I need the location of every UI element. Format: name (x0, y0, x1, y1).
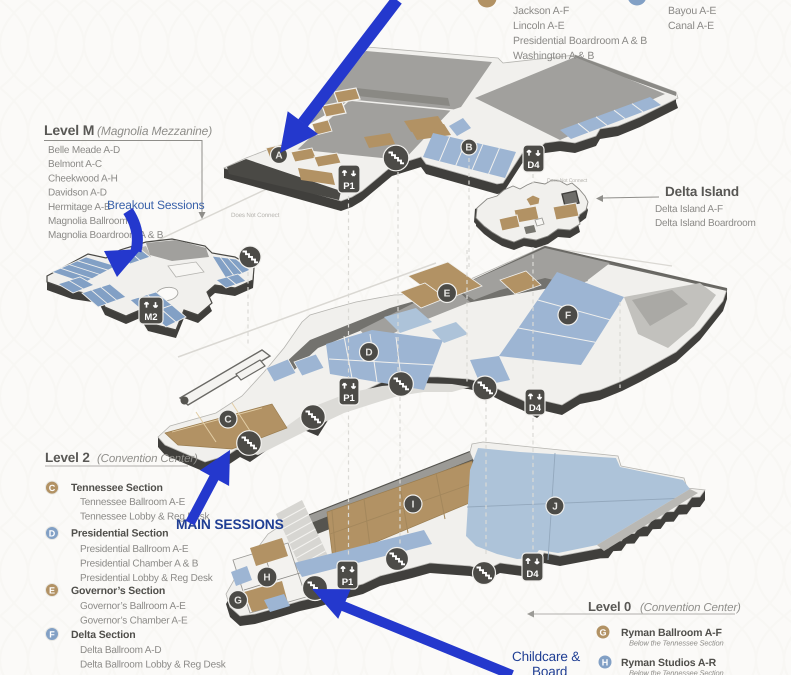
svg-text:D4: D4 (526, 569, 539, 580)
svg-text:F: F (49, 630, 55, 640)
svg-text:M2: M2 (144, 312, 157, 323)
svg-text:Delta Ballroom A-D: Delta Ballroom A-D (80, 645, 161, 656)
svg-text:Lincoln A-E: Lincoln A-E (513, 20, 565, 32)
svg-text:Belle Meade A-D: Belle Meade A-D (48, 145, 120, 156)
svg-text:D: D (365, 348, 372, 359)
svg-text:E: E (49, 586, 55, 596)
svg-text:(Magnolia Mezzanine): (Magnolia Mezzanine) (97, 124, 212, 138)
svg-text:C: C (224, 415, 231, 426)
svg-text:Magnolia Boardroom A & B: Magnolia Boardroom A & B (48, 230, 164, 241)
svg-text:Delta Island Boardroom: Delta Island Boardroom (655, 218, 756, 229)
svg-text:D4: D4 (527, 160, 540, 171)
svg-text:P1: P1 (343, 393, 355, 404)
svg-text:Presidential Chamber A & B: Presidential Chamber A & B (80, 559, 199, 570)
svg-text:Magnolia Ballroom: Magnolia Ballroom (48, 216, 127, 227)
svg-text:J: J (552, 502, 558, 513)
svg-text:Level 0: Level 0 (588, 599, 631, 614)
svg-text:Tennessee Section: Tennessee Section (71, 482, 163, 494)
svg-text:Davidson A-D: Davidson A-D (48, 188, 107, 199)
svg-text:Level M: Level M (44, 122, 94, 138)
svg-text:Belmont A-C: Belmont A-C (48, 159, 102, 170)
svg-text:B: B (465, 143, 472, 154)
svg-text:C: C (49, 483, 56, 493)
svg-text:Presidential Section: Presidential Section (71, 528, 168, 540)
svg-text:H: H (602, 658, 609, 668)
svg-text:H: H (263, 573, 270, 584)
svg-text:Delta Ballroom Lobby & Reg Des: Delta Ballroom Lobby & Reg Desk (80, 660, 227, 671)
svg-text:Level 2: Level 2 (45, 450, 90, 465)
svg-text:Ryman Ballroom A-F: Ryman Ballroom A-F (621, 627, 722, 639)
svg-text:Does Not Connect: Does Not Connect (231, 212, 280, 219)
svg-text:Tennessee Ballroom A-E: Tennessee Ballroom A-E (80, 497, 186, 508)
svg-text:Presidential Lobby & Reg Desk: Presidential Lobby & Reg Desk (80, 573, 214, 584)
svg-text:Bayou A-E: Bayou A-E (668, 5, 716, 17)
svg-text:P1: P1 (342, 577, 354, 588)
svg-text:Delta Island A-F: Delta Island A-F (655, 204, 723, 215)
svg-text:I: I (412, 500, 415, 511)
svg-text:Governor’s Ballroom A-E: Governor’s Ballroom A-E (80, 601, 186, 612)
svg-text:Presidential Ballroom A-E: Presidential Ballroom A-E (80, 544, 189, 555)
svg-text:Breakout Sessions: Breakout Sessions (107, 198, 205, 212)
svg-text:Hermitage A-E: Hermitage A-E (48, 202, 111, 213)
svg-text:(Convention Center): (Convention Center) (640, 602, 741, 614)
svg-text:G: G (599, 628, 606, 638)
svg-text:Board: Board (532, 664, 567, 675)
svg-text:G: G (234, 596, 242, 607)
svg-text:Ryman Studios A-R: Ryman Studios A-R (621, 657, 717, 669)
svg-text:Below the Tennessee Section: Below the Tennessee Section (629, 669, 724, 675)
svg-text:Governor’s Chamber A-E: Governor’s Chamber A-E (80, 616, 188, 627)
svg-text:P1: P1 (343, 181, 355, 192)
svg-text:Canal A-E: Canal A-E (668, 20, 714, 32)
svg-text:E: E (444, 289, 451, 300)
svg-text:Does Not Connect: Does Not Connect (547, 178, 588, 184)
svg-text:Presidential Boardroom A & B: Presidential Boardroom A & B (513, 35, 647, 47)
svg-text:Delta Section: Delta Section (71, 629, 136, 641)
svg-text:Delta Island: Delta Island (665, 184, 739, 199)
svg-text:Childcare &: Childcare & (512, 649, 580, 664)
svg-text:F: F (565, 311, 571, 322)
svg-text:A: A (275, 151, 282, 162)
svg-text:(Convention Center): (Convention Center) (97, 453, 198, 465)
svg-text:D: D (49, 529, 56, 539)
svg-text:Below the Tennessee Section: Below the Tennessee Section (629, 639, 724, 648)
svg-text:Governor’s Section: Governor’s Section (71, 585, 165, 597)
svg-text:Cheekwood A-H: Cheekwood A-H (48, 173, 118, 184)
svg-text:Washington A & B: Washington A & B (513, 50, 594, 62)
svg-text:D4: D4 (529, 403, 542, 414)
svg-text:Jackson A-F: Jackson A-F (513, 5, 569, 17)
